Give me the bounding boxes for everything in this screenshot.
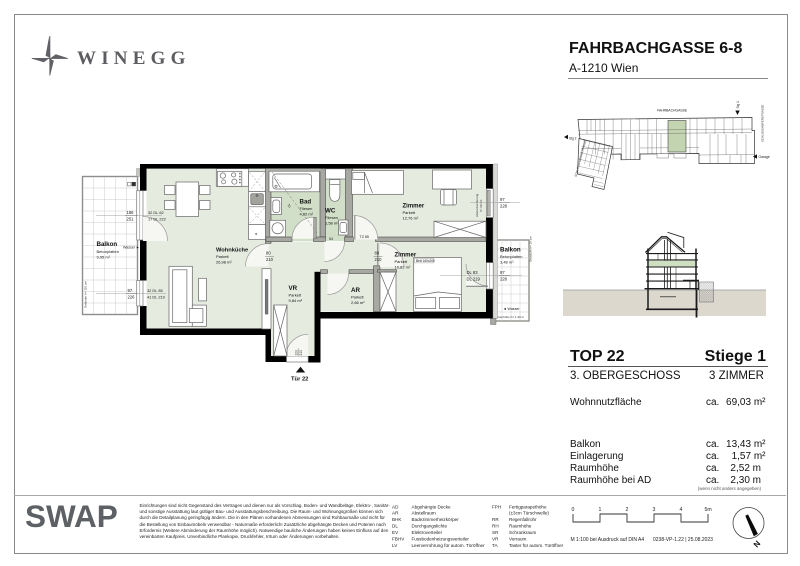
svg-text:VR: VR xyxy=(289,285,298,292)
svg-text:41 DL 219: 41 DL 219 xyxy=(147,295,165,300)
svg-text:Fliesen: Fliesen xyxy=(300,206,313,211)
svg-text:97: 97 xyxy=(128,288,133,293)
svg-text:Leerverrohrung für autom. Türö: Leerverrohrung für autom. Türöffner xyxy=(412,543,486,548)
svg-text:4,92 m²: 4,92 m² xyxy=(300,212,314,217)
svg-text:Abstellraum: Abstellraum xyxy=(412,511,436,516)
svg-text:Balkon: Balkon xyxy=(97,241,118,248)
svg-text:9,95 m²: 9,95 m² xyxy=(97,255,111,260)
svg-text:210: 210 xyxy=(375,257,383,262)
svg-text:251: 251 xyxy=(127,216,135,221)
svg-text:Stg 1: Stg 1 xyxy=(736,101,740,109)
svg-text:Fliesen: Fliesen xyxy=(325,215,338,220)
svg-text:N: N xyxy=(752,539,763,549)
svg-text:210: 210 xyxy=(266,257,274,262)
svg-text:Wohnküche: Wohnküche xyxy=(216,248,248,254)
svg-text:SCHLOSSHOFERSTRASSE: SCHLOSSHOFERSTRASSE xyxy=(761,105,765,142)
svg-text:AR: AR xyxy=(351,287,360,294)
svg-text:3: 3 xyxy=(653,507,656,513)
svg-text:0238-VP-1.22 | 25.08.2023: 0238-VP-1.22 | 25.08.2023 xyxy=(653,537,713,543)
svg-text:Zimmer: Zimmer xyxy=(395,253,417,259)
svg-text:DL 83: DL 83 xyxy=(467,270,479,275)
svg-text:Zimmer: Zimmer xyxy=(403,204,425,210)
svg-text:EV: EV xyxy=(392,530,399,535)
svg-text:SR: SR xyxy=(492,530,499,535)
svg-text:Parkett: Parkett xyxy=(216,254,230,259)
svg-text:2: 2 xyxy=(626,507,629,513)
svg-text:Betonplatten: Betonplatten xyxy=(500,254,522,259)
svg-text:Parkett: Parkett xyxy=(289,293,303,298)
svg-text:100: 100 xyxy=(294,350,298,356)
svg-text:1: 1 xyxy=(599,507,602,513)
svg-text:VR: VR xyxy=(492,536,499,541)
svg-text:FAHRBACHGASSE: FAHRBACHGASSE xyxy=(657,109,688,113)
svg-text:◄ Wasser: ◄ Wasser xyxy=(503,307,520,311)
svg-text:17 DL 222: 17 DL 222 xyxy=(148,216,166,221)
svg-text:h= 60 cm: h= 60 cm xyxy=(479,199,483,212)
svg-text:RR: RR xyxy=(492,517,499,522)
svg-text:Schrankraum: Schrankraum xyxy=(509,530,536,535)
svg-text:226: 226 xyxy=(128,295,136,300)
svg-text:Fertigparapethöhe: Fertigparapethöhe xyxy=(509,504,547,509)
svg-text:Raumhöhe: Raumhöhe xyxy=(509,524,532,529)
svg-text:4: 4 xyxy=(680,507,683,513)
svg-text:Abgehängte Decke: Abgehängte Decke xyxy=(412,504,452,509)
svg-text:1,58 m²: 1,58 m² xyxy=(325,221,339,226)
svg-text:RH: RH xyxy=(492,524,499,529)
svg-text:Stg 2: Stg 2 xyxy=(569,137,577,141)
svg-text:TA: TA xyxy=(492,543,498,548)
svg-text:Bett 160x200: Bett 160x200 xyxy=(416,259,435,263)
svg-text:228: 228 xyxy=(500,204,508,209)
svg-text:Garage: Garage xyxy=(759,155,770,159)
svg-text:M 1:100 bei Ausdruck auf DIN A: M 1:100 bei Ausdruck auf DIN A4 xyxy=(571,537,645,543)
svg-text:54: 54 xyxy=(329,237,333,241)
svg-text:3,48 m²: 3,48 m² xyxy=(500,260,514,265)
svg-text:TZ 85: TZ 85 xyxy=(360,235,369,239)
svg-text:97: 97 xyxy=(500,197,505,202)
svg-text:DL 219: DL 219 xyxy=(467,277,481,282)
svg-text:5m: 5m xyxy=(705,507,712,513)
svg-text:FBHV: FBHV xyxy=(392,536,405,541)
svg-text:Balkon: Balkon xyxy=(500,247,521,254)
svg-text:Badezimmerheizkörper: Badezimmerheizkörper xyxy=(412,517,460,522)
svg-text:80: 80 xyxy=(266,251,271,256)
svg-text:WC: WC xyxy=(325,208,336,215)
svg-text:2,66 m²: 2,66 m² xyxy=(351,300,365,305)
svg-text:32 DL 62: 32 DL 62 xyxy=(148,210,164,215)
svg-text:Tür 22: Tür 22 xyxy=(291,377,308,383)
svg-text:Taster für autom. Türöffner: Taster für autom. Türöffner xyxy=(509,543,564,548)
svg-text:Setzstufe h= 16 cm: Setzstufe h= 16 cm xyxy=(529,236,533,262)
svg-text:80: 80 xyxy=(375,251,380,256)
svg-text:26,98 m²: 26,98 m² xyxy=(216,260,232,265)
svg-text:AR: AR xyxy=(392,511,399,516)
svg-text:Bad: Bad xyxy=(300,199,312,206)
svg-text:228: 228 xyxy=(500,277,508,282)
svg-text:LV: LV xyxy=(392,543,398,548)
svg-text:210: 210 xyxy=(299,350,303,356)
svg-text:Parkett: Parkett xyxy=(403,210,417,215)
svg-text:AD: AD xyxy=(392,504,399,509)
svg-text:FPH: FPH xyxy=(492,504,501,509)
svg-text:Vorraum: Vorraum xyxy=(509,536,527,541)
svg-text:0: 0 xyxy=(572,507,575,513)
svg-text:Elektroverteiler: Elektroverteiler xyxy=(412,530,443,535)
svg-text:Parkett: Parkett xyxy=(395,259,409,264)
svg-text:BHK: BHK xyxy=(392,517,402,522)
svg-text:Parkett: Parkett xyxy=(351,295,365,300)
svg-text:32 DL 85: 32 DL 85 xyxy=(147,288,163,293)
svg-text:Wasser ►: Wasser ► xyxy=(123,246,140,250)
svg-text:12,76 m²: 12,76 m² xyxy=(403,216,419,221)
svg-text:(±3cm Türschwelle): (±3cm Türschwelle) xyxy=(509,511,549,516)
svg-text:Geländer h= 110 cm: Geländer h= 110 cm xyxy=(84,280,88,308)
svg-text:Fussbodenheizungsverteiler: Fussbodenheizungsverteiler xyxy=(412,536,470,541)
svg-text:DL: DL xyxy=(392,524,398,529)
svg-text:Regenfallrohr: Regenfallrohr xyxy=(509,517,537,522)
svg-text:Betonplatten: Betonplatten xyxy=(97,249,119,254)
svg-text:Durchgangslichte: Durchgangslichte xyxy=(412,524,448,529)
svg-text:10,82 m²: 10,82 m² xyxy=(395,265,411,270)
svg-text:97: 97 xyxy=(500,270,505,275)
svg-text:186: 186 xyxy=(127,210,135,215)
svg-text:Gartenhöhe h= 1,30 m: Gartenhöhe h= 1,30 m xyxy=(494,315,525,319)
svg-text:9,84 m²: 9,84 m² xyxy=(289,298,303,303)
